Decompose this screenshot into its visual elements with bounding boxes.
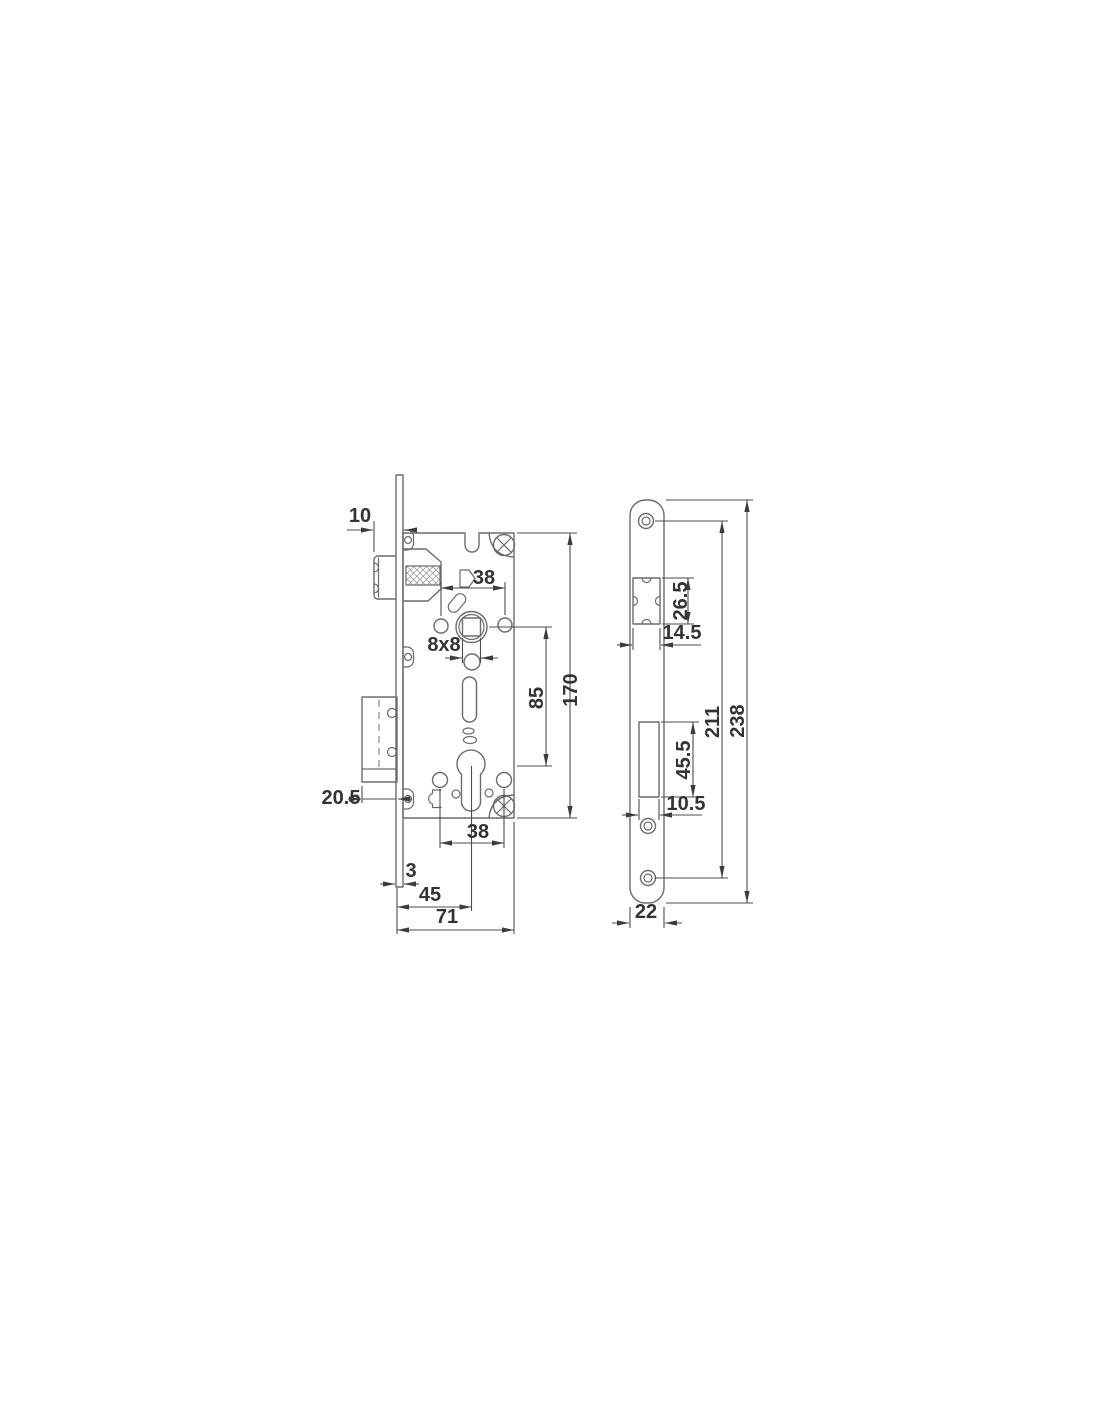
dim-follower-square: 8x8 — [427, 634, 498, 663]
cylinder-fix-hole-left — [433, 773, 448, 788]
handle-hole-left — [434, 619, 448, 633]
dim-case-depth-label: 71 — [436, 906, 458, 928]
dim-screw-centers: 211 — [655, 521, 728, 878]
boss-hole-middle — [405, 654, 412, 661]
lock-body-side-view: 10 38 8x8 85 170 — [322, 475, 582, 934]
dim-deadbolt-cutout-width-label: 10.5 — [667, 793, 706, 815]
dim-latch-protrusion-label: 10 — [349, 505, 371, 527]
extension-lines — [639, 799, 659, 820]
pin-hole-left — [452, 790, 460, 798]
plate-screw-holes — [639, 514, 656, 886]
cylinder-fix-hole-right — [497, 773, 512, 788]
latch-head — [374, 556, 396, 599]
dim-hub-hole-spacing-label: 38 — [473, 567, 495, 589]
dim-backset-label: 45 — [419, 884, 441, 906]
dim-plate-width-label: 22 — [635, 901, 657, 923]
latch-spring-hatch — [406, 566, 440, 585]
faceplate-front-view: 26.5 14.5 45.5 10.5 — [612, 500, 753, 928]
dim-hub-to-cylinder: 85 — [489, 627, 552, 766]
boss-hole-top — [405, 537, 412, 544]
screw-hole-bottom-outer — [641, 871, 656, 886]
dim-hub-hole-spacing: 38 — [441, 567, 505, 616]
dim-follower-square-label: 8x8 — [427, 634, 460, 656]
dim-hub-to-cylinder-label: 85 — [526, 687, 548, 709]
latch-cutout — [633, 578, 660, 624]
deadbolt-cutout-rect — [639, 722, 659, 797]
dim-latch-cutout-height: 26.5 — [662, 578, 694, 624]
dim-faceplate-thickness-label: 3 — [405, 860, 416, 882]
small-slot-lower — [464, 737, 477, 744]
pin-hole-right — [485, 789, 493, 797]
page: 10 38 8x8 85 170 — [0, 0, 1100, 1422]
screw-hole-top-inner — [642, 517, 650, 525]
spindle-hole — [464, 654, 480, 670]
screw-hole-middle-outer — [641, 819, 656, 834]
technical-drawing: 10 38 8x8 85 170 — [0, 0, 1100, 1422]
dim-deadbolt-cutout-height-label: 45.5 — [673, 741, 695, 780]
dim-faceplate-thickness: 3 — [380, 860, 419, 884]
dim-plate-length: 238 — [666, 500, 753, 903]
extension-lines — [655, 521, 728, 878]
dim-latch-protrusion: 10 — [347, 505, 416, 552]
dim-deadbolt-throw: 20.5 — [322, 786, 412, 809]
extension-lines — [633, 628, 660, 650]
side-tab — [429, 790, 441, 808]
handle-hole-right — [498, 618, 512, 632]
dim-latch-cutout-height-label: 26.5 — [670, 582, 692, 621]
faceplate-side — [396, 475, 414, 887]
faceplate-outline — [630, 500, 664, 903]
dim-plate-width: 22 — [612, 901, 682, 928]
guide-pin — [446, 591, 468, 614]
screw-hole-bottom-inner — [644, 874, 652, 882]
deadbolt — [362, 697, 397, 782]
lock-dimensions: 10 38 8x8 85 170 — [322, 505, 582, 934]
screw-hole-top-outer — [639, 514, 654, 529]
dim-deadbolt-cutout-height: 45.5 — [661, 722, 699, 797]
lever-slot — [463, 677, 477, 722]
dim-screw-centers-label: 211 — [702, 706, 724, 738]
latch-bolt — [374, 549, 441, 601]
dim-latch-cutout-width-label: 14.5 — [663, 622, 702, 644]
screw-cross-top — [497, 538, 511, 552]
deadbolt-pin-upper — [388, 709, 397, 718]
hub-square-8x8 — [463, 618, 481, 636]
dim-deadbolt-throw-label: 20.5 — [322, 787, 361, 809]
dim-case-height: 170 — [517, 533, 582, 818]
plate-dimensions: 26.5 14.5 45.5 10.5 — [612, 500, 753, 928]
dim-backset: 45 — [397, 766, 472, 934]
screw-hole-middle-inner — [644, 822, 652, 830]
extension-lines — [666, 500, 753, 903]
dim-cylinder-hole-spacing-label: 38 — [467, 821, 489, 843]
faceplate-strip — [396, 475, 403, 887]
deadbolt-pin-lower — [388, 748, 397, 757]
small-slot-upper — [463, 728, 474, 734]
dim-plate-length-label: 238 — [727, 704, 749, 737]
dim-case-height-label: 170 — [560, 673, 582, 706]
